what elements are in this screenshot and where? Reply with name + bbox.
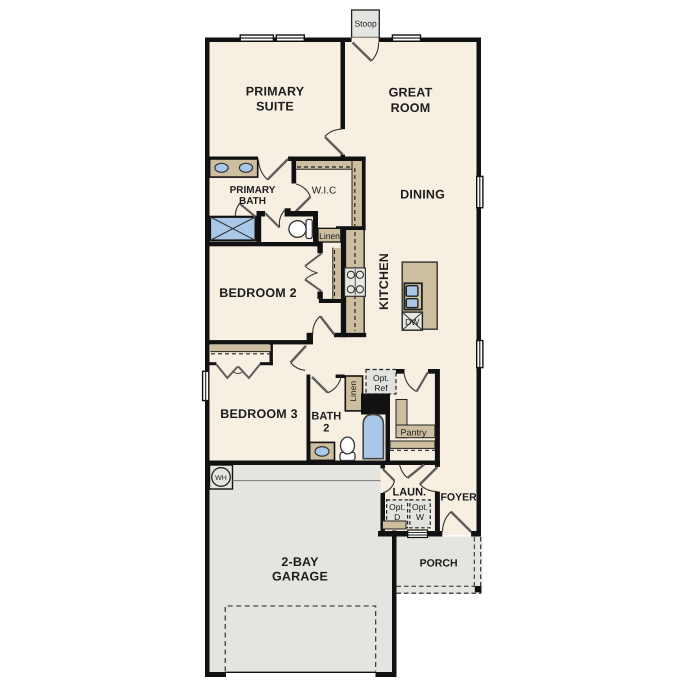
svg-text:PORCH: PORCH [420,557,458,569]
svg-text:BATH: BATH [239,196,266,207]
svg-text:Opt.: Opt. [373,373,389,383]
svg-text:FOYER: FOYER [441,491,478,503]
svg-text:2-BAY: 2-BAY [281,555,319,569]
svg-text:Linen: Linen [319,231,340,241]
svg-text:GARAGE: GARAGE [272,570,328,584]
svg-text:KITCHEN: KITCHEN [377,253,391,310]
svg-text:BEDROOM 2: BEDROOM 2 [219,286,297,300]
svg-text:Ref: Ref [374,383,388,393]
svg-text:LAUN.: LAUN. [392,487,426,499]
svg-text:W: W [416,512,424,522]
svg-text:Linen: Linen [348,381,358,402]
svg-text:DW: DW [405,317,419,327]
svg-text:PRIMARY: PRIMARY [246,84,305,98]
svg-text:Stoop: Stoop [354,19,376,29]
svg-text:2: 2 [323,423,329,435]
svg-text:PRIMARY: PRIMARY [230,185,276,196]
svg-text:W.I.C: W.I.C [312,186,336,197]
svg-text:SUITE: SUITE [256,100,294,114]
svg-text:Opt.: Opt. [412,502,428,512]
svg-text:DINING: DINING [400,187,445,201]
svg-text:BATH: BATH [311,411,341,423]
svg-text:BEDROOM 3: BEDROOM 3 [220,407,298,421]
svg-text:ROOM: ROOM [391,101,431,115]
svg-text:WH: WH [215,475,227,482]
svg-text:Pantry: Pantry [400,427,427,437]
svg-text:GREAT: GREAT [389,86,433,100]
svg-text:Opt.: Opt. [389,502,405,512]
